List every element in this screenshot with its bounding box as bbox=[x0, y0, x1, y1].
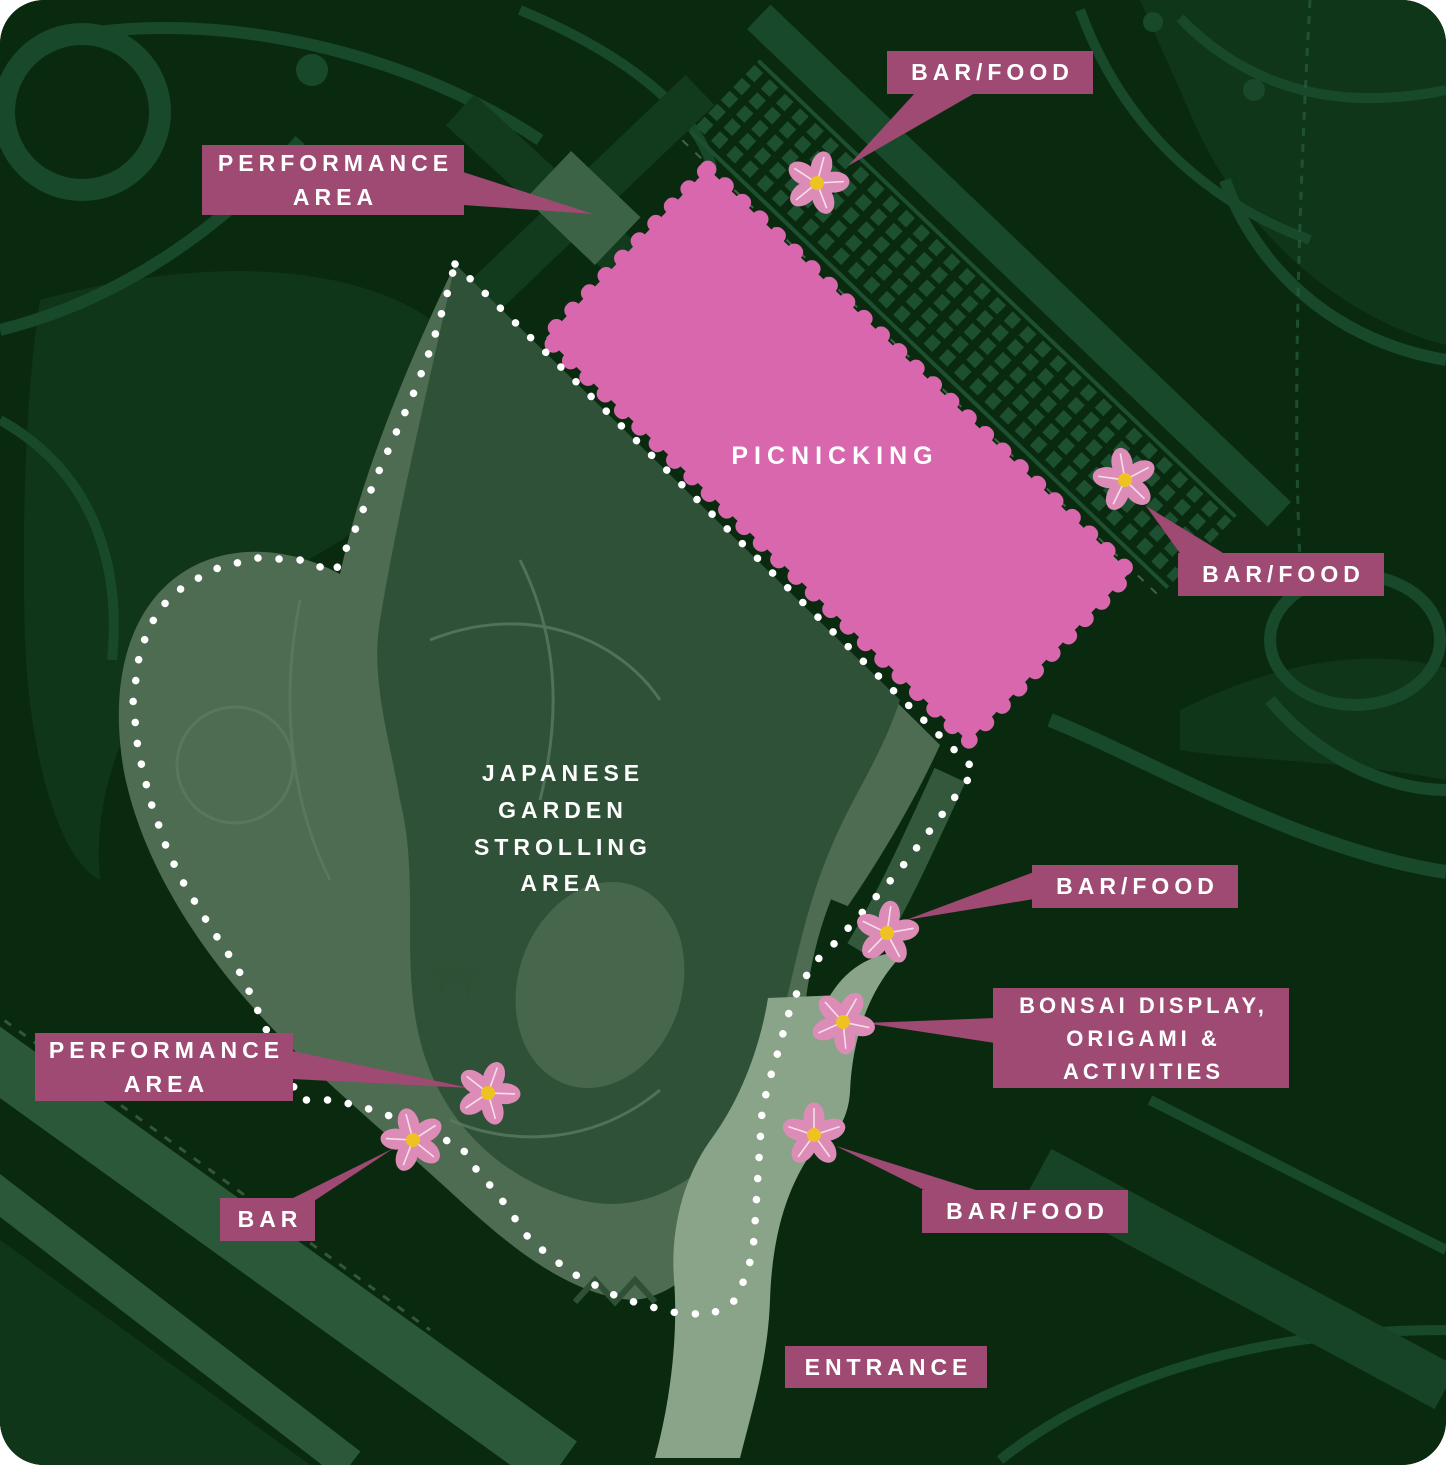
park-map: PICNICKING JAPANESE GARDEN STROLLING ARE… bbox=[0, 0, 1446, 1465]
japanese-garden-label: JAPANESE GARDEN STROLLING AREA bbox=[408, 755, 712, 902]
label-bar-food-middle: BAR/FOOD bbox=[1032, 865, 1238, 908]
label-performance-area-north: PERFORMANCE AREA bbox=[202, 145, 464, 215]
map-canvas bbox=[0, 0, 1446, 1465]
picnicking-area-label: PICNICKING bbox=[682, 442, 982, 471]
label-bar-food-north: BAR/FOOD bbox=[887, 51, 1093, 94]
label-bar-food-south: BAR/FOOD bbox=[922, 1190, 1128, 1233]
label-bar: BAR bbox=[220, 1198, 315, 1241]
label-performance-area-south: PERFORMANCE AREA bbox=[35, 1033, 293, 1101]
label-bar-food-east: BAR/FOOD bbox=[1178, 553, 1384, 596]
label-entrance: ENTRANCE bbox=[785, 1346, 987, 1388]
label-bonsai-display: BONSAI DISPLAY, ORIGAMI & ACTIVITIES bbox=[993, 988, 1289, 1088]
